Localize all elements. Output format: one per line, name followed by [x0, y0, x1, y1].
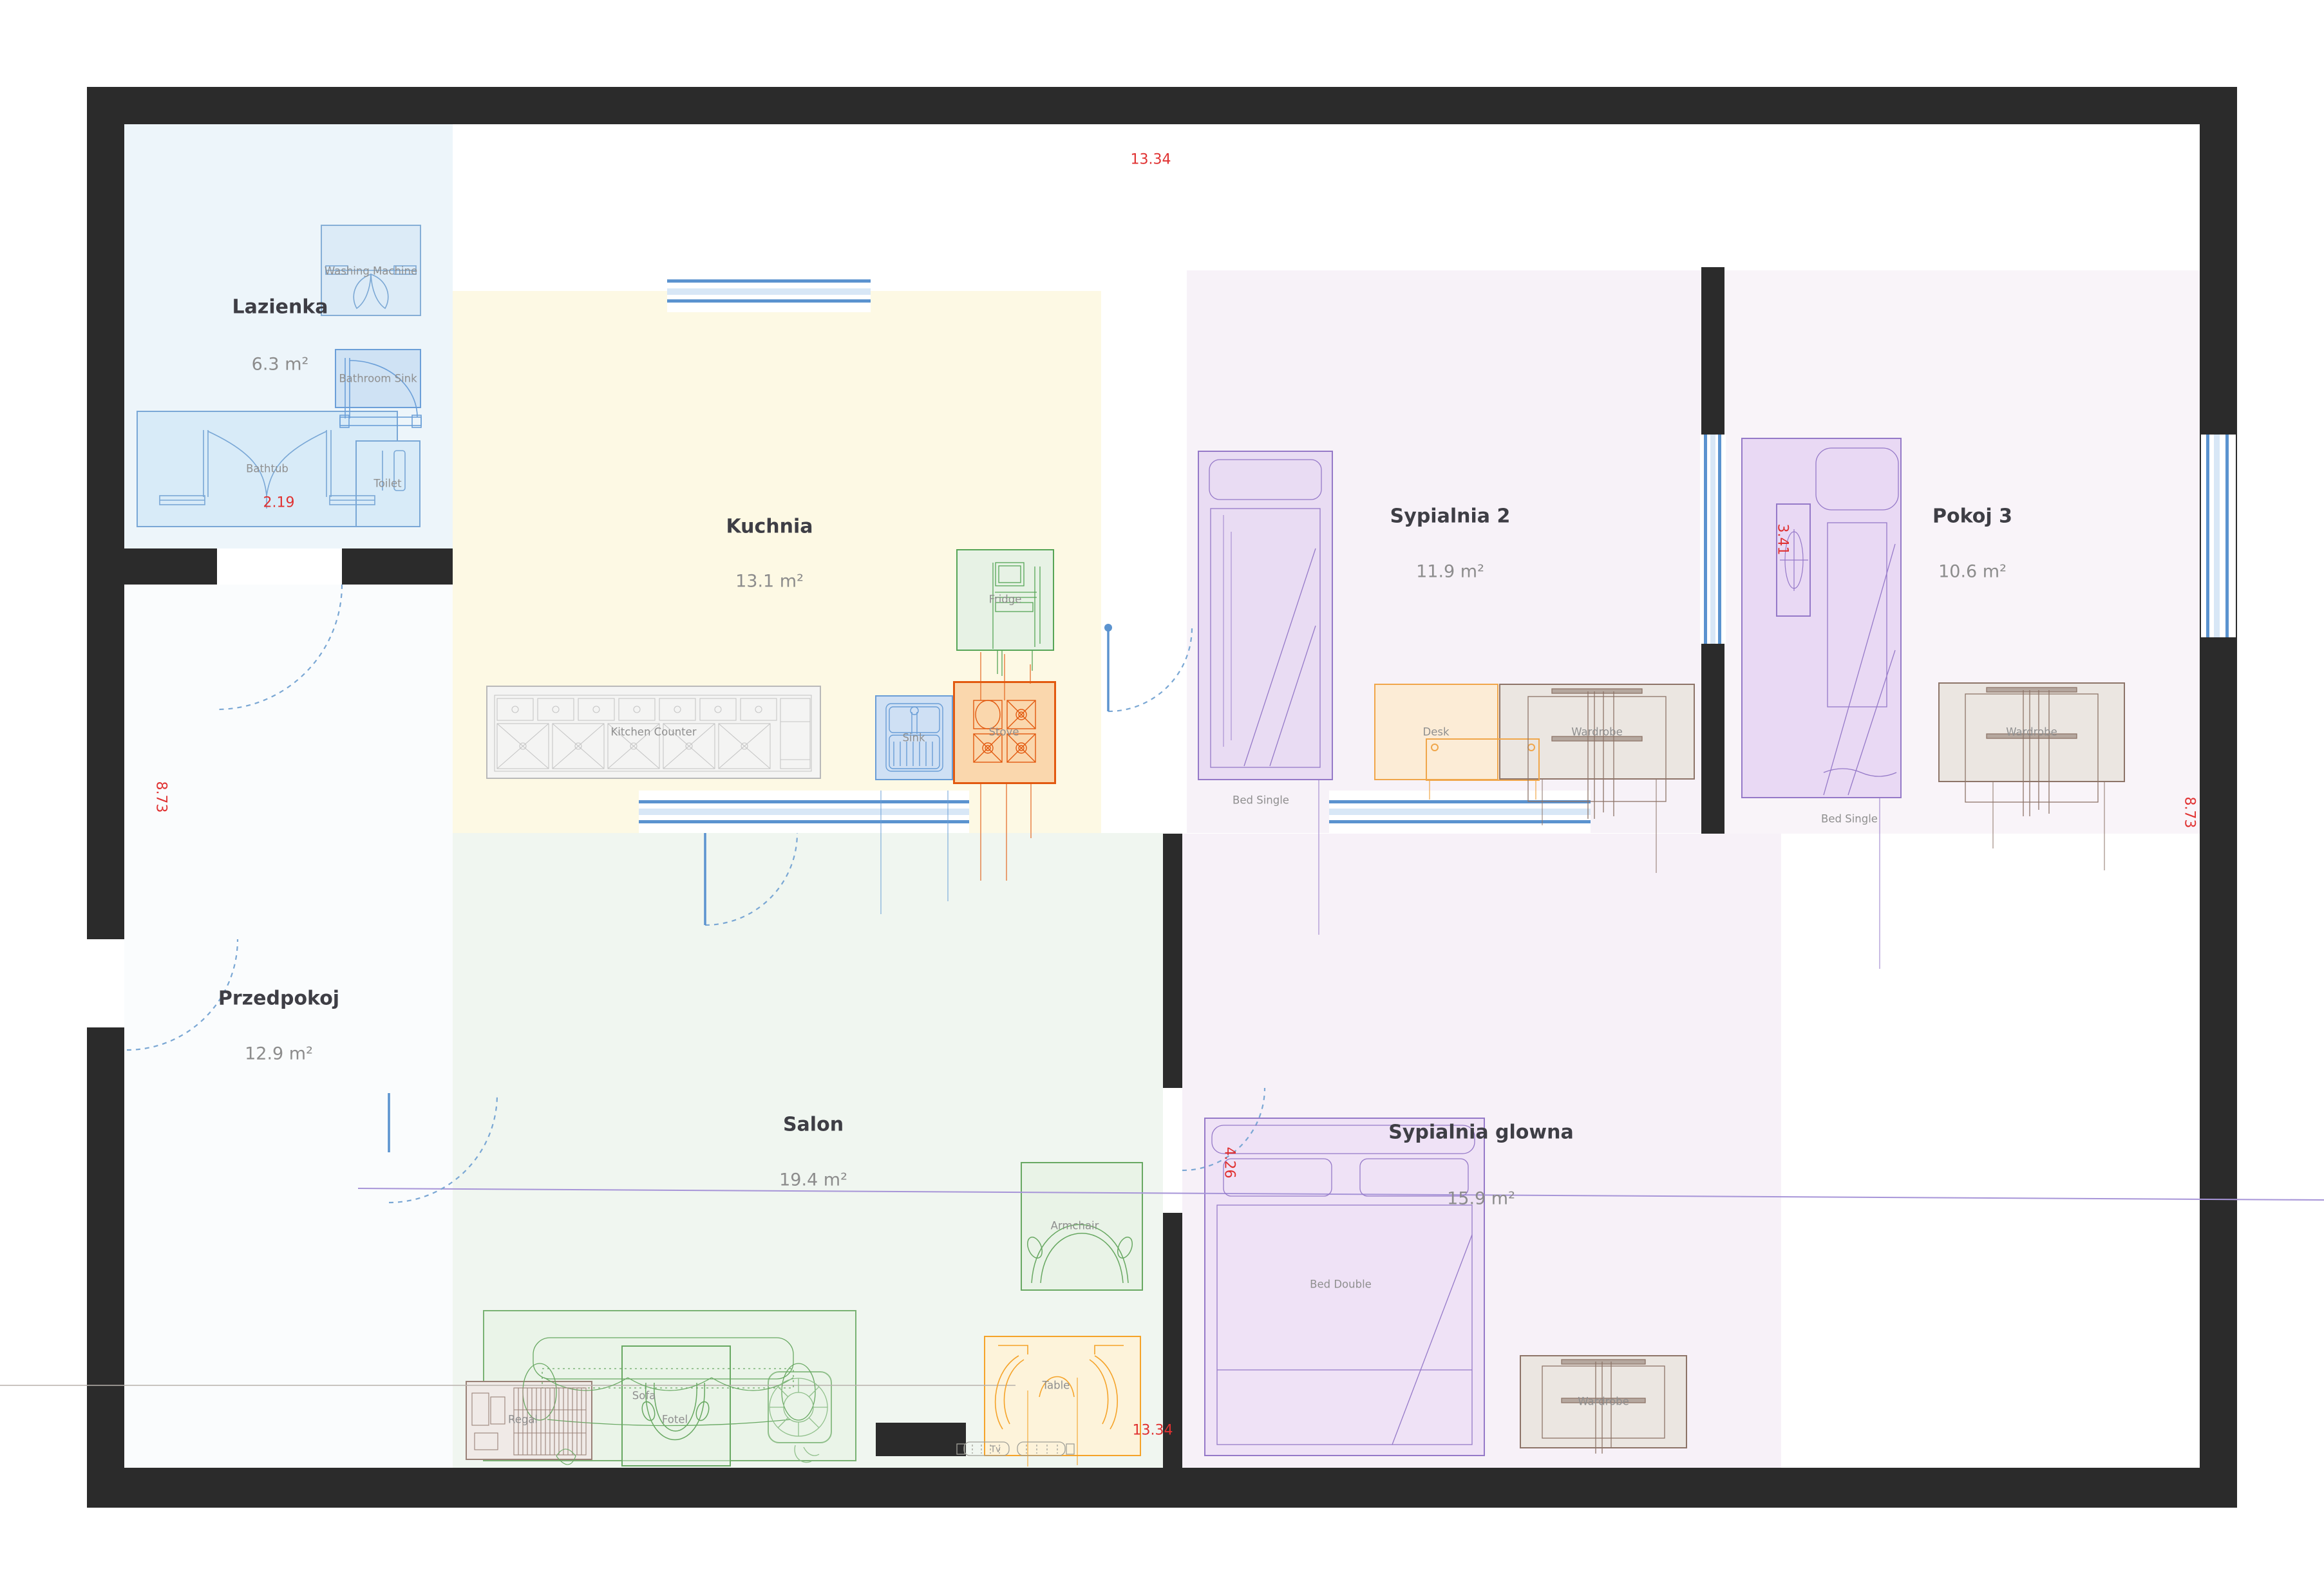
stray-guide-lines [0, 1188, 2324, 1385]
label-bathroom-sink: Bathroom Sink [339, 373, 417, 385]
sketch-overlay [0, 0, 2324, 1592]
label-sofa: Sofa [632, 1390, 656, 1402]
armchair-icon [1025, 1224, 1135, 1283]
door-arc-corridor [1108, 628, 1192, 711]
dimension-bottom: 13.34 [1133, 1423, 1173, 1439]
label-wardrobe-main: Wardrobe [1578, 1396, 1629, 1408]
room-label-przedpokoj: Przedpokoj [218, 988, 339, 1010]
room-label-sypialnia-2: Sypialnia 2 [1390, 505, 1511, 528]
dimension-bathtub: 2.19 [263, 495, 295, 511]
label-wardrobe-3: Wardrobe [2006, 726, 2057, 738]
room-area-salon: 19.4 m² [779, 1170, 847, 1190]
room-label-salon: Salon [783, 1114, 844, 1136]
label-toilet: Toilet [373, 478, 401, 490]
label-fotel: Fotel [662, 1414, 688, 1426]
room-label-kuchnia: Kuchnia [726, 516, 813, 538]
tv-bench-icon [957, 1442, 1074, 1456]
label-regal: Regal [508, 1414, 538, 1426]
bed-single-2-icon [1209, 460, 1321, 935]
dimension-left: 8.73 [153, 782, 169, 813]
label-fridge: Fridge [989, 594, 1022, 606]
regal-icon [472, 1388, 586, 1465]
door-hinge-dot [1104, 624, 1112, 632]
label-bathtub: Bathtub [246, 463, 288, 475]
label-sink: Sink [902, 732, 925, 744]
label-bed-single-2: Bed Single [1233, 794, 1289, 807]
room-area-pokoj-3: 10.6 m² [1938, 562, 2007, 582]
floor-plan: Lazienka 6.3 m² Kuchnia 13.1 m² Sypialni… [0, 0, 2324, 1592]
label-tv: Tv [990, 1445, 1001, 1455]
dimension-pokoj3-bed: 3.41 [1775, 524, 1791, 556]
door-arcs [127, 585, 1265, 1203]
room-label-pokoj-3: Pokoj 3 [1932, 505, 2012, 528]
room-area-sypialnia-2: 11.9 m² [1416, 562, 1484, 582]
room-label-lazienka: Lazienka [232, 296, 328, 319]
room-area-przedpokoj: 12.9 m² [245, 1044, 313, 1064]
room-area-kuchnia: 13.1 m² [735, 572, 804, 592]
room-area-lazienka: 6.3 m² [252, 355, 309, 375]
room-label-sypialnia-glowna: Sypialnia glowna [1388, 1121, 1573, 1144]
sofa-icon [523, 1338, 815, 1426]
dimension-glowna-bed: 4.26 [1222, 1147, 1238, 1179]
stove-icon [974, 652, 1035, 881]
door-arc-kitchen-salon [705, 833, 797, 925]
dimension-right: 8.73 [2182, 797, 2198, 829]
label-washing-machine: Washing Machine [325, 265, 417, 277]
door-arc-przedpokoj-salon [389, 1094, 497, 1203]
label-bed-single-3: Bed Single [1821, 813, 1878, 825]
label-armchair: Armchair [1051, 1220, 1099, 1232]
label-wardrobe-2: Wardrobe [1571, 726, 1622, 738]
bathroom-sink-icon [340, 358, 421, 427]
label-bed-double: Bed Double [1310, 1278, 1372, 1291]
label-desk: Desk [1422, 726, 1449, 738]
wardrobe-2-icon [1528, 689, 1666, 873]
dimension-top: 13.34 [1131, 152, 1171, 168]
room-area-sypialnia-glowna: 15.9 m² [1447, 1189, 1515, 1209]
table-chairs-icon [996, 1345, 1124, 1466]
bed-single-3-icon [1816, 448, 1898, 969]
fridge-icon [993, 563, 1040, 676]
wardrobe-3-icon [1965, 688, 2104, 870]
label-stove: Stove [989, 726, 1019, 738]
desk-icon [1426, 739, 1539, 800]
door-arc-lazienka [217, 585, 342, 709]
label-table: Table [1043, 1380, 1070, 1392]
label-kitchen-counter: Kitchen Counter [610, 726, 696, 738]
